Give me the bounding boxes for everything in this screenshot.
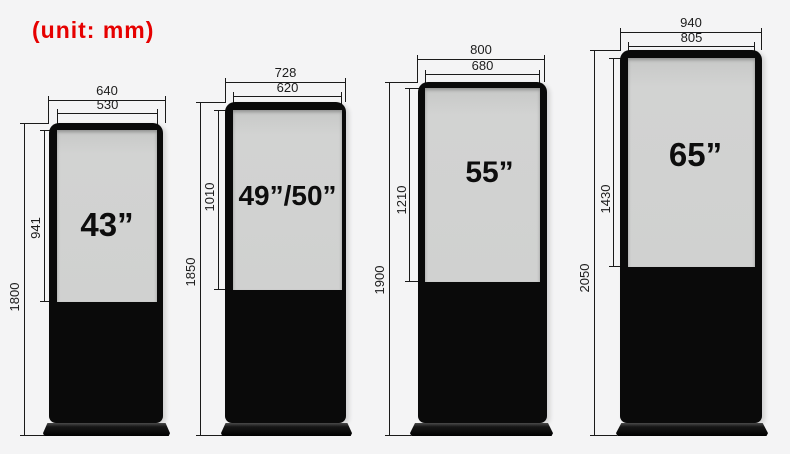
dim-outer-width-label: 728 (225, 66, 346, 80)
kiosk-base (410, 423, 553, 436)
dim-screen-height-label: 941 (27, 198, 45, 258)
screen-size-label: 55” (465, 158, 513, 188)
dim-outer-width-label: 940 (620, 16, 762, 30)
dim-screen-width-line (233, 96, 342, 97)
dim-total-height-label: 2050 (576, 248, 594, 308)
dim-screen-width-line (628, 46, 755, 47)
dim-screen-width-label: 530 (57, 98, 158, 112)
dim-tick (385, 82, 418, 83)
kiosk-screen: 49”/50” (233, 110, 342, 290)
dim-tick (20, 123, 49, 124)
kiosk-base (616, 423, 768, 436)
dim-total-height-label: 1850 (182, 242, 200, 302)
screen-size-label: 49”/50” (238, 182, 336, 210)
dim-tick (196, 435, 224, 436)
dim-screen-width-label: 680 (425, 59, 540, 73)
dim-tick (385, 435, 411, 436)
dim-tick (165, 96, 166, 123)
dim-tick (20, 435, 44, 436)
dim-tick (345, 78, 346, 102)
dim-tick (590, 435, 617, 436)
dim-tick (417, 55, 418, 82)
dim-tick (620, 28, 621, 50)
dim-tick (48, 96, 49, 123)
dim-total-height-line (594, 50, 595, 436)
dim-screen-width-label: 805 (628, 31, 755, 45)
dim-total-height-line (200, 102, 201, 436)
dim-screen-width-line (425, 74, 540, 75)
dim-tick (590, 50, 621, 51)
dim-screen-height-label: 1010 (201, 167, 219, 227)
dim-tick (544, 55, 545, 82)
kiosk-base (43, 423, 170, 436)
screen-size-label: 43” (80, 208, 133, 241)
dim-total-height-line (389, 82, 390, 436)
kiosk-screen: 43” (57, 130, 157, 302)
dim-screen-width-label: 620 (233, 81, 342, 95)
kiosk-size-diagram: (unit: mm) 640 530 1800 941 43” 728 (0, 0, 790, 454)
dim-total-height-line (24, 123, 25, 436)
dim-screen-width-line (57, 113, 158, 114)
unit-label: (unit: mm) (32, 17, 154, 44)
dim-tick (196, 102, 226, 103)
dim-total-height-label: 1800 (6, 267, 24, 327)
dim-screen-height-label: 1210 (393, 170, 411, 230)
dim-tick (225, 78, 226, 102)
kiosk-base (221, 423, 352, 436)
kiosk-screen: 65” (628, 58, 755, 267)
dim-tick (761, 28, 762, 50)
dim-total-height-label: 1900 (371, 250, 389, 310)
dim-outer-width-label: 640 (48, 84, 166, 98)
kiosk-screen: 55” (425, 88, 540, 282)
dim-screen-height-line (613, 58, 614, 267)
dim-outer-width-label: 800 (417, 43, 545, 57)
dim-screen-height-label: 1430 (597, 169, 615, 229)
screen-size-label: 65” (669, 138, 722, 171)
